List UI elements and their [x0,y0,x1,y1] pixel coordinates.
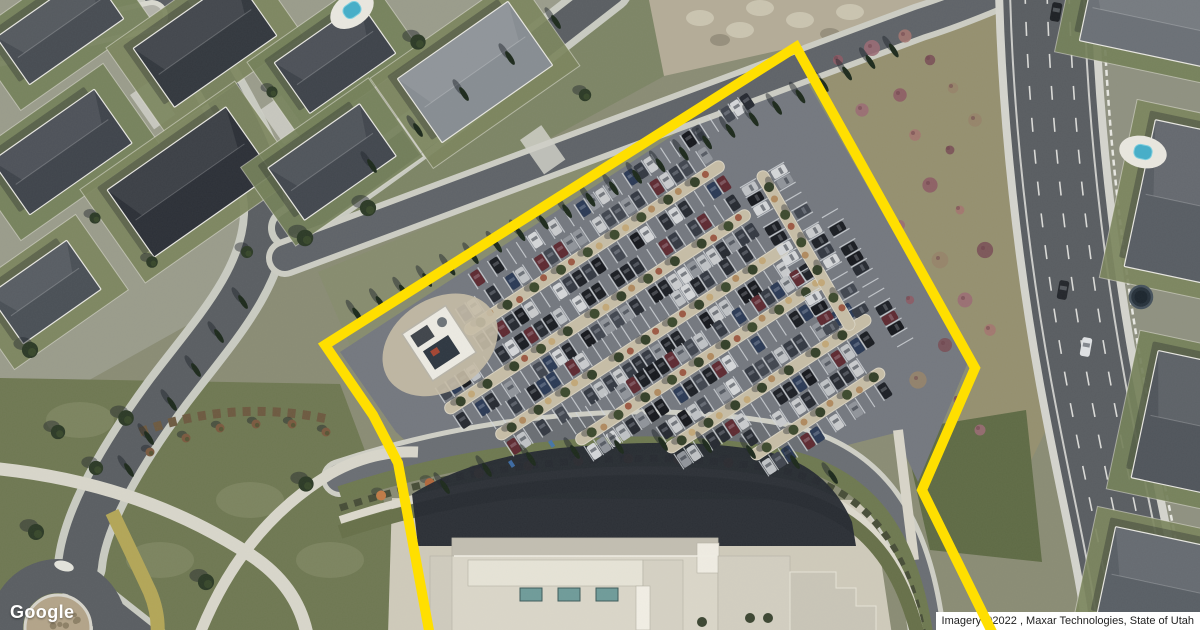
scrub-bush [932,252,949,269]
scrub-bush [938,338,952,352]
scrub-bush [948,83,959,94]
google-logo[interactable]: Google [10,603,74,621]
scrub-bush [958,293,973,308]
scrub-bush [909,371,926,388]
scrub-bush [898,29,911,42]
scrub-bush [855,103,868,116]
skylight [558,588,580,601]
building-layer [412,443,876,630]
map-attribution: Imagery ©2022 , Maxar Technologies, Stat… [936,612,1200,630]
scrub-bush [922,177,937,192]
scrub-bush [895,220,905,230]
map-viewport[interactable]: Imagery ©2022 , Maxar Technologies, Stat… [0,0,1200,630]
scrub-bush [909,129,921,141]
scrub-bush [984,324,996,336]
scrub-bush [968,113,982,127]
skylight [520,588,542,601]
scrub-bush [893,88,906,101]
satellite-imagery [0,0,1200,630]
skylight [596,588,618,601]
scrub-bush [974,424,985,435]
scrub-bush [977,242,993,258]
scrub-bush [925,55,936,66]
